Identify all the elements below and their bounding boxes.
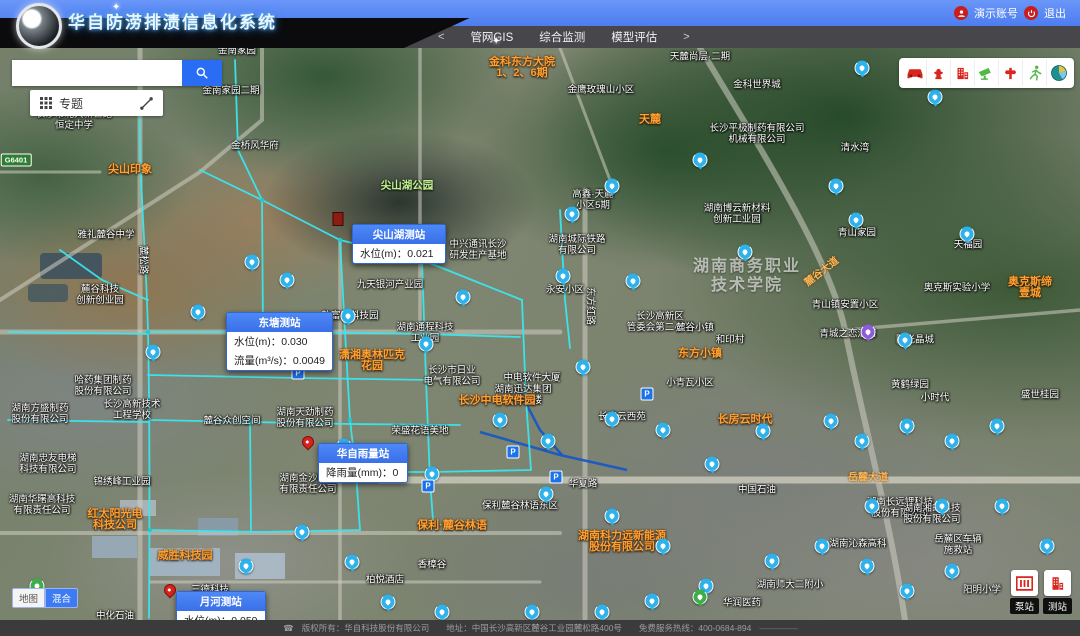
- water-drop-icon: [559, 272, 566, 279]
- map-label: 威胜科技园: [158, 551, 213, 562]
- water-drop-icon: [149, 348, 156, 355]
- water-drop-icon: [598, 608, 605, 615]
- popup-row: 降雨量(mm)：0: [319, 463, 407, 482]
- account-name[interactable]: 演示账号: [974, 5, 1018, 21]
- station-marker-icon[interactable]: [295, 525, 310, 540]
- station-marker-icon[interactable]: [493, 413, 508, 428]
- water-drop-icon: [903, 587, 910, 594]
- map-label: 青山镇安置小区: [812, 300, 879, 311]
- map-label: 荣盛花语美地: [391, 426, 448, 437]
- water-drop-icon: [648, 597, 655, 604]
- map-label: 锦绣峰工业园: [93, 477, 150, 488]
- search-box: [12, 60, 222, 86]
- power-icon: [1024, 6, 1038, 20]
- parking-icon[interactable]: P: [550, 471, 563, 484]
- map-label: 香樟谷: [418, 560, 447, 571]
- map-label: 华润医药: [723, 598, 761, 609]
- road-shield-g6401: G6401: [1, 154, 32, 167]
- map-label: 盛世桂园: [1021, 390, 1059, 401]
- station-marker-icon[interactable]: [626, 274, 641, 289]
- station-marker-icon[interactable]: [860, 559, 875, 574]
- station-marker-icon[interactable]: [556, 269, 571, 284]
- map-label: 麓谷大道: [803, 255, 841, 288]
- user-icon: [954, 6, 968, 20]
- map-label: 保利·麓谷林语: [417, 521, 487, 532]
- main-nav: < 管网GIS 综合监测 模型评估 >: [438, 26, 690, 48]
- water-drop-icon: [702, 582, 709, 589]
- map-marker-layer: 金南家园金南家园二期金科东方大院 1、2、6期天麓尚层·二期金鹰玫瑰山小区金科世…: [0, 48, 1080, 620]
- station-marker-icon[interactable]: [525, 605, 540, 620]
- sparkle-decoration: ✦: [112, 2, 120, 13]
- map-label: 金南家园二期: [202, 86, 259, 97]
- map-label: 湖南忠友电梯 科技有限公司: [19, 453, 76, 475]
- map-label: 金桥风华府: [231, 141, 279, 152]
- map-label: 湖南沁森高科: [829, 539, 886, 550]
- station-marker-icon[interactable]: [935, 499, 950, 514]
- map-label: 金鹰玫瑰山小区: [568, 85, 635, 96]
- station-marker-icon[interactable]: [541, 434, 556, 449]
- pump-station-label: 泵站: [1010, 598, 1039, 614]
- map-label: 东方小镇: [678, 349, 722, 360]
- station-marker-icon[interactable]: [865, 499, 880, 514]
- water-drop-icon: [659, 426, 666, 433]
- station-marker-icon[interactable]: [705, 457, 720, 472]
- station-marker-icon[interactable]: [945, 564, 960, 579]
- water-drop-icon: [818, 542, 825, 549]
- water-drop-icon: [568, 210, 575, 217]
- water-drop-icon: [901, 336, 908, 343]
- popup-row: 流量(m³/s)：0.0049: [227, 351, 332, 370]
- search-icon: [195, 66, 209, 80]
- water-drop-icon: [948, 567, 955, 574]
- corner-buttons: 泵站 测站: [1010, 570, 1072, 614]
- map-label: 潇湘奥林匹克 花园: [339, 350, 405, 372]
- popup-title: 华自雨量站: [319, 444, 407, 463]
- map-label: 湖南博云新材料 创新工业园: [704, 203, 771, 225]
- station-marker-icon[interactable]: [565, 207, 580, 222]
- map-label: 天麓: [639, 115, 661, 126]
- basemap-hybrid-button[interactable]: 混合: [45, 588, 78, 608]
- map-label: 柏悦酒店: [366, 575, 404, 586]
- water-drop-icon: [998, 502, 1005, 509]
- flag-marker-icon[interactable]: [333, 212, 344, 226]
- map-label: 中化石油: [96, 611, 134, 621]
- poi-marker-icon[interactable]: [861, 325, 876, 340]
- map-label: 麓谷小镇: [676, 323, 714, 334]
- station-marker-icon[interactable]: [960, 227, 975, 242]
- map-label: 黄鹤绿园: [891, 380, 929, 391]
- water-drop-icon: [768, 557, 775, 564]
- map-label: 天麓尚层·二期: [670, 52, 730, 63]
- station-marker-icon[interactable]: [898, 333, 913, 348]
- popup-title: 东塘测站: [227, 313, 332, 332]
- topic-label: 专题: [59, 95, 83, 112]
- station-popup[interactable]: 尖山湖测站水位(m)：0.021: [352, 224, 446, 264]
- map-label: 红太阳光电 科技公司: [88, 509, 143, 531]
- water-drop-icon: [459, 293, 466, 300]
- popup-row: 水位(m)：0.059: [177, 611, 265, 620]
- parking-icon[interactable]: P: [507, 446, 520, 459]
- parking-icon[interactable]: P: [422, 480, 435, 493]
- station-popup[interactable]: 东塘测站水位(m)：0.030流量(m³/s)：0.0049: [226, 312, 333, 371]
- popup-title: 尖山湖测站: [353, 225, 445, 244]
- map-label: 长沙高新技术 工程学校: [103, 399, 160, 421]
- station-marker-icon[interactable]: [605, 509, 620, 524]
- account-area: 演示账号 退出: [954, 0, 1066, 26]
- water-drop-icon: [542, 490, 549, 497]
- sparkle-decoration: ✦: [492, 36, 500, 47]
- popup-row: 水位(m)：0.030: [227, 332, 332, 351]
- map-label: 岳麓大道: [848, 473, 888, 484]
- pump-icon: [1011, 570, 1038, 596]
- water-drop-icon: [759, 427, 766, 434]
- footer-bar: ☎ 版权所有：华自科技股份有限公司 地址：中国长沙高新区麓谷工业园麓松路400号…: [0, 620, 1080, 636]
- water-drop-icon: [858, 437, 865, 444]
- water-drop-icon: [963, 230, 970, 237]
- water-drop-icon: [696, 156, 703, 163]
- water-drop-icon: [422, 340, 429, 347]
- station-marker-icon[interactable]: [605, 412, 620, 427]
- map-label: 长沙高新区 管委会第二小学: [627, 311, 694, 333]
- measure-icon[interactable]: [140, 97, 153, 110]
- station-marker-icon[interactable]: [435, 605, 450, 620]
- station-marker-icon[interactable]: [1040, 539, 1055, 554]
- topic-bar[interactable]: 专题: [30, 90, 163, 116]
- water-drop-icon: [1043, 542, 1050, 549]
- station-marker-icon[interactable]: [419, 337, 434, 352]
- map-label: 麓谷科技 创新创业园: [76, 284, 124, 306]
- station-marker-icon[interactable]: [756, 424, 771, 439]
- map-label: 小时代: [921, 393, 950, 404]
- station-marker-icon[interactable]: [280, 273, 295, 288]
- water-drop-icon: [248, 258, 255, 265]
- station-popup[interactable]: 月河测站水位(m)：0.059: [176, 591, 266, 620]
- map-label: 湖南天劲制药 股份有限公司: [276, 407, 333, 429]
- app-window: 华自防涝排渍信息化系统 ✦ ✦ < 管网GIS 综合监测 模型评估 > 演示账号…: [0, 0, 1080, 636]
- station-marker-icon[interactable]: [605, 179, 620, 194]
- water-drop-icon: [608, 182, 615, 189]
- station-marker-icon[interactable]: [900, 584, 915, 599]
- building-icon[interactable]: [951, 60, 975, 86]
- station-marker-icon[interactable]: [995, 499, 1010, 514]
- nav-tab-model-eval[interactable]: 模型评估: [611, 29, 657, 45]
- station-marker-icon[interactable]: [345, 555, 360, 570]
- station-marker-icon[interactable]: [824, 414, 839, 429]
- water-drop-icon: [931, 93, 938, 100]
- water-drop-icon: [608, 512, 615, 519]
- water-drop-icon: [194, 308, 201, 315]
- map-label: 中电软件大厦: [503, 373, 560, 384]
- poi-glyph: [696, 593, 703, 600]
- map-label: 湖南科力远新能源 股份有限公司: [578, 531, 666, 553]
- station-marker-icon[interactable]: [456, 290, 471, 305]
- water-drop-icon: [283, 276, 290, 283]
- map-label: 阳明小学: [963, 585, 1001, 596]
- map-label: 湖南方盛制药 股份有限公司: [11, 403, 68, 425]
- water-drop-icon: [938, 502, 945, 509]
- station-popup[interactable]: 华自雨量站降雨量(mm)：0: [318, 443, 408, 483]
- map-label: 小青瓦小区: [666, 378, 714, 389]
- map-label: 金南家园: [218, 48, 256, 57]
- water-drop-icon: [344, 312, 351, 319]
- monitor-station-label: 测站: [1043, 598, 1072, 614]
- map-label: 湖南华曙高科技 有限责任公司: [9, 494, 76, 516]
- map-label: 湖南城际铁路 有限公司: [548, 234, 605, 256]
- map-canvas[interactable]: 金南家园金南家园二期金科东方大院 1、2、6期天麓尚层·二期金鹰玫瑰山小区金科世…: [0, 48, 1080, 620]
- nav-tab-monitoring[interactable]: 综合监测: [539, 29, 585, 45]
- pin-marker-icon[interactable]: [300, 434, 317, 451]
- water-drop-icon: [438, 608, 445, 615]
- station-marker-icon[interactable]: [765, 554, 780, 569]
- station-marker-icon[interactable]: [990, 419, 1005, 434]
- popup-title: 月河测站: [177, 592, 265, 611]
- station-marker-icon[interactable]: [239, 559, 254, 574]
- map-label: 湖南迅达集团 总部大楼: [494, 384, 551, 406]
- station-marker-icon[interactable]: [576, 360, 591, 375]
- water-drop-icon: [858, 64, 865, 71]
- map-label: 金科世界城: [733, 80, 781, 91]
- basemap-toggle: 地图 混合: [12, 588, 78, 608]
- water-drop-icon: [242, 562, 249, 569]
- water-drop-icon: [852, 216, 859, 223]
- station-marker-icon[interactable]: [855, 434, 870, 449]
- station-marker-icon[interactable]: [829, 179, 844, 194]
- water-drop-icon: [741, 248, 748, 255]
- search-input[interactable]: [12, 60, 182, 86]
- poi-marker-icon[interactable]: [693, 590, 708, 605]
- water-drop-icon: [863, 562, 870, 569]
- map-label: 中兴通讯长沙 研发生产基地: [449, 239, 506, 261]
- station-marker-icon[interactable]: [656, 423, 671, 438]
- map-label: 长沙平极制药有限公司 机械有限公司: [709, 123, 804, 145]
- phone-icon: ☎: [283, 623, 294, 634]
- valve-icon[interactable]: [999, 60, 1023, 86]
- map-label: 清水湾: [841, 143, 870, 154]
- basemap-map-button[interactable]: 地图: [12, 588, 45, 608]
- station-marker-icon[interactable]: [815, 539, 830, 554]
- water-drop-icon: [544, 437, 551, 444]
- station-marker-icon[interactable]: [855, 61, 870, 76]
- water-drop-icon: [608, 415, 615, 422]
- water-drop-icon: [629, 277, 636, 284]
- app-title: 华自防涝排渍信息化系统: [68, 8, 277, 33]
- footer-copyright: 版权所有：华自科技股份有限公司 地址：中国长沙高新区麓谷工业园麓松路400号 免…: [302, 622, 752, 634]
- water-drop-icon: [827, 417, 834, 424]
- stats-globe-icon[interactable]: [1047, 60, 1070, 86]
- map-label: 湖南师大二附小: [757, 580, 824, 591]
- map-label: 雅礼麓谷中学: [77, 230, 134, 241]
- map-label: 东方红路: [585, 287, 596, 325]
- monitor-station-button[interactable]: 测站: [1043, 570, 1072, 614]
- map-label: 九天银河产业园: [357, 280, 424, 291]
- poi-glyph: [864, 328, 871, 335]
- water-drop-icon: [948, 437, 955, 444]
- grid-icon: [40, 97, 52, 109]
- map-label: 奥克斯实验小学: [924, 283, 991, 294]
- water-drop-icon: [659, 542, 666, 549]
- station-marker-icon[interactable]: [693, 153, 708, 168]
- station-marker-icon[interactable]: [928, 90, 943, 105]
- pump-station-button[interactable]: 泵站: [1010, 570, 1039, 614]
- map-label: 哈药集团制药 股份有限公司: [74, 375, 131, 397]
- water-drop-icon: [903, 422, 910, 429]
- station-marker-icon[interactable]: [191, 305, 206, 320]
- map-legend-toolbar: [899, 58, 1074, 88]
- map-label: 岳麓区车辆 施救站: [934, 534, 982, 556]
- station-marker-icon[interactable]: [381, 595, 396, 610]
- station-building-icon: [1044, 570, 1071, 596]
- hydrant-icon[interactable]: [927, 60, 951, 86]
- app-logo: [16, 3, 62, 49]
- nav-next-arrow[interactable]: >: [683, 31, 689, 43]
- popup-row: 水位(m)：0.021: [353, 244, 445, 263]
- map-label: 尖山印象: [108, 165, 152, 176]
- map-label: 中国石油: [738, 485, 776, 496]
- footer-dash: —————: [759, 623, 797, 633]
- map-label: 长沙中电软件园: [459, 396, 536, 407]
- station-marker-icon[interactable]: [245, 255, 260, 270]
- map-label: 麓谷众创空间: [203, 416, 260, 427]
- car-icon[interactable]: [903, 60, 927, 86]
- map-label: 湖南湘邮科技 股份有限公司: [903, 503, 960, 525]
- search-button[interactable]: [182, 60, 222, 86]
- camera-icon[interactable]: [975, 60, 999, 86]
- water-drop-icon: [496, 416, 503, 423]
- logout-button[interactable]: 退出: [1044, 5, 1066, 21]
- map-label: 华夏路: [569, 479, 598, 490]
- map-label: 奥克斯缔壹城: [1005, 277, 1055, 299]
- nav-prev-arrow[interactable]: <: [438, 31, 444, 43]
- water-drop-icon: [528, 608, 535, 615]
- station-marker-icon[interactable]: [849, 213, 864, 228]
- parking-icon[interactable]: P: [641, 388, 654, 401]
- station-marker-icon[interactable]: [539, 487, 554, 502]
- water-drop-icon: [298, 528, 305, 535]
- map-label: 和印村: [716, 335, 745, 346]
- water-drop-icon: [868, 502, 875, 509]
- map-label: 麓松路: [138, 246, 149, 275]
- station-marker-icon[interactable]: [945, 434, 960, 449]
- water-drop-icon: [348, 558, 355, 565]
- station-marker-icon[interactable]: [738, 245, 753, 260]
- map-label: 长沙市日业 电气有限公司: [423, 365, 480, 387]
- station-marker-icon[interactable]: [595, 605, 610, 620]
- water-drop-icon: [579, 363, 586, 370]
- water-drop-icon: [428, 470, 435, 477]
- runner-icon[interactable]: [1023, 60, 1047, 86]
- station-marker-icon[interactable]: [341, 309, 356, 324]
- water-drop-icon: [384, 598, 391, 605]
- water-drop-icon: [832, 182, 839, 189]
- water-drop-icon: [993, 422, 1000, 429]
- station-marker-icon[interactable]: [645, 594, 660, 609]
- station-marker-icon[interactable]: [146, 345, 161, 360]
- map-label: 尖山湖公园: [381, 181, 434, 192]
- station-marker-icon[interactable]: [656, 539, 671, 554]
- map-label: 金科东方大院 1、2、6期: [489, 57, 555, 79]
- station-marker-icon[interactable]: [900, 419, 915, 434]
- water-drop-icon: [708, 460, 715, 467]
